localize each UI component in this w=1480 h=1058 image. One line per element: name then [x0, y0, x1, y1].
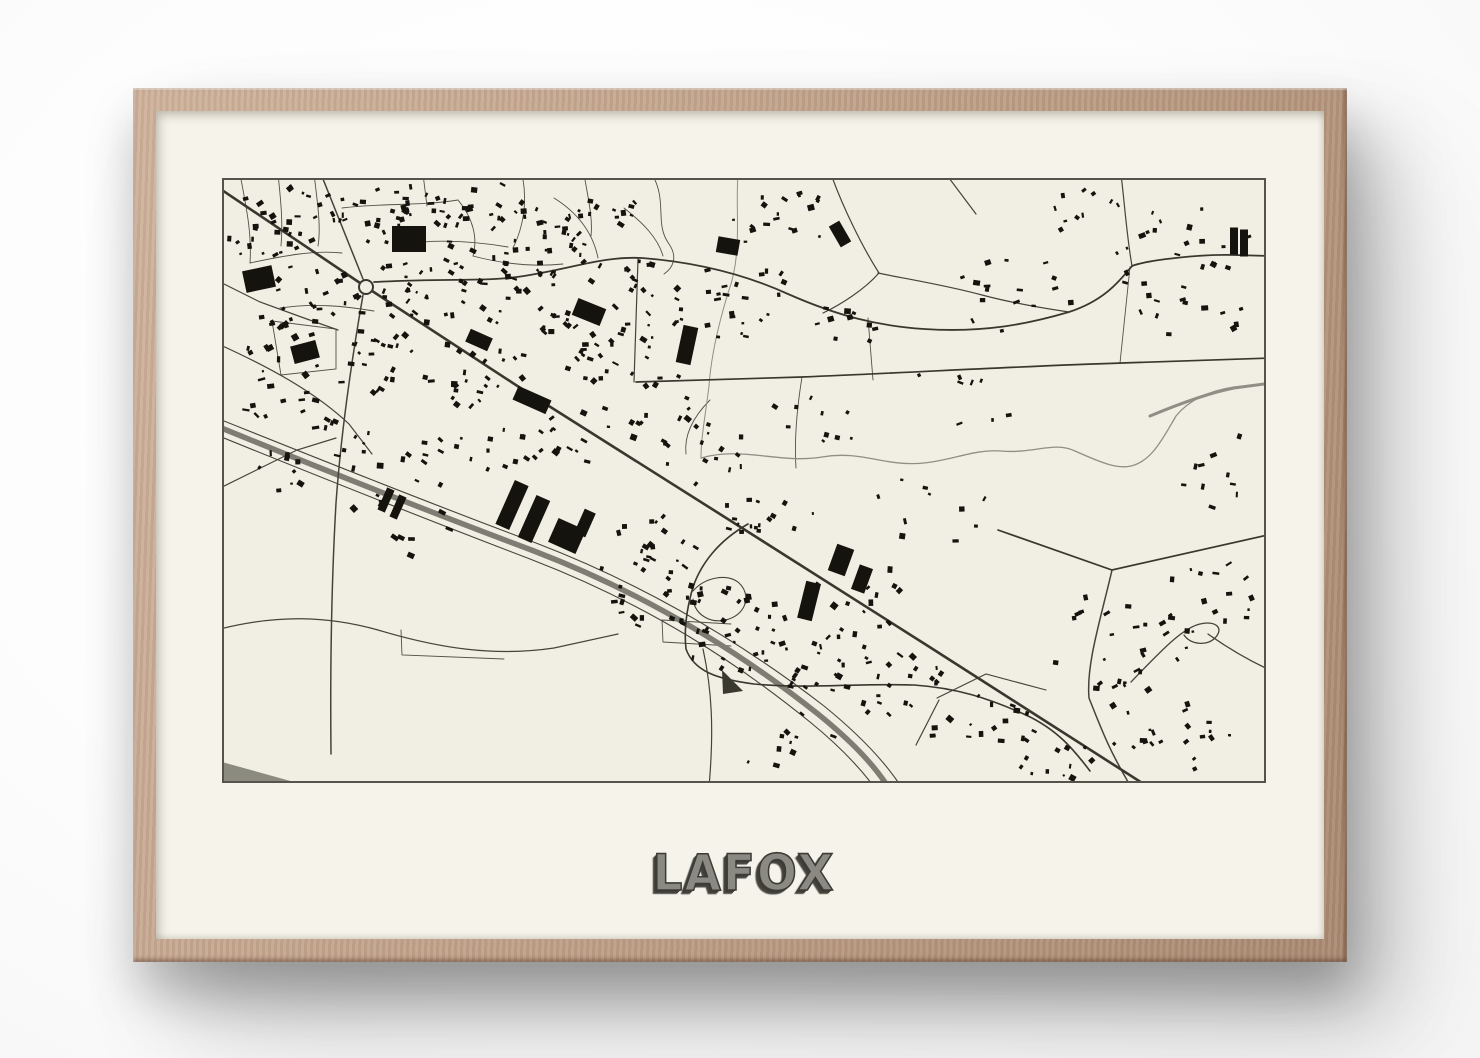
poster-title: LAFOX [222, 846, 1266, 901]
roundabout [359, 280, 373, 294]
city-map [222, 178, 1266, 783]
map-paper [222, 178, 1266, 783]
frame-mat: LAFOX [156, 111, 1324, 939]
picture-frame: LAFOX [133, 88, 1347, 962]
wall: LAFOX [0, 0, 1480, 1058]
city-map-svg [222, 178, 1266, 783]
